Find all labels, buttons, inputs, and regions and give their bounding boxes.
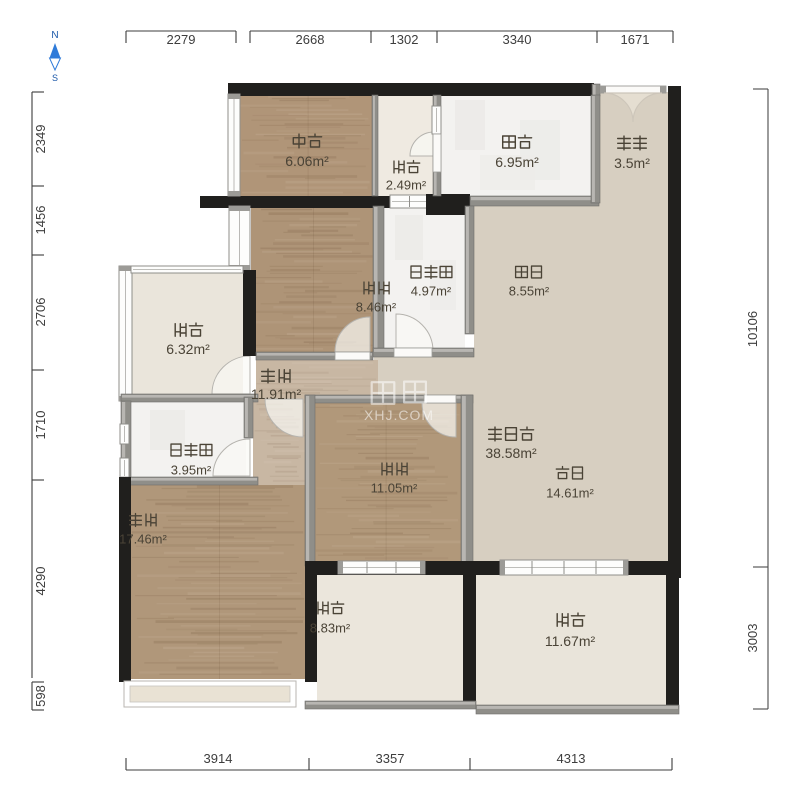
svg-text:1302: 1302 xyxy=(390,32,419,47)
svg-text:3003: 3003 xyxy=(745,624,760,653)
svg-text:2279: 2279 xyxy=(167,32,196,47)
svg-text:598: 598 xyxy=(33,685,48,707)
svg-text:6.32m²: 6.32m² xyxy=(166,341,210,357)
svg-text:3914: 3914 xyxy=(204,751,233,766)
svg-text:4313: 4313 xyxy=(557,751,586,766)
svg-text:3340: 3340 xyxy=(503,32,532,47)
svg-text:10106: 10106 xyxy=(745,311,760,347)
svg-text:11.91m²: 11.91m² xyxy=(251,386,302,402)
svg-text:38.58m²: 38.58m² xyxy=(485,445,537,461)
svg-text:8.46m²: 8.46m² xyxy=(356,300,397,315)
svg-text:6.95m²: 6.95m² xyxy=(495,154,539,170)
svg-text:1710: 1710 xyxy=(33,411,48,440)
svg-text:3.95m²: 3.95m² xyxy=(171,463,212,478)
svg-text:2349: 2349 xyxy=(33,125,48,154)
svg-text:11.67m²: 11.67m² xyxy=(545,633,596,649)
svg-text:4.97m²: 4.97m² xyxy=(411,284,452,299)
svg-text:11.05m²: 11.05m² xyxy=(371,481,418,496)
svg-text:1671: 1671 xyxy=(621,32,650,47)
svg-text:N: N xyxy=(51,30,58,41)
svg-text:8.55m²: 8.55m² xyxy=(509,284,550,299)
svg-text:XHJ.COM: XHJ.COM xyxy=(364,407,434,423)
svg-text:6.06m²: 6.06m² xyxy=(285,153,329,169)
svg-text:2706: 2706 xyxy=(33,298,48,327)
svg-text:14.61m²: 14.61m² xyxy=(546,486,594,501)
svg-text:3357: 3357 xyxy=(376,751,405,766)
svg-text:17.46m²: 17.46m² xyxy=(119,532,167,547)
svg-text:2.49m²: 2.49m² xyxy=(386,178,427,193)
svg-text:3.5m²: 3.5m² xyxy=(614,155,650,171)
svg-text:2668: 2668 xyxy=(296,32,325,47)
svg-text:1456: 1456 xyxy=(33,206,48,235)
svg-text:4290: 4290 xyxy=(33,567,48,596)
svg-text:8.83m²: 8.83m² xyxy=(310,621,351,636)
svg-text:S: S xyxy=(52,73,58,83)
